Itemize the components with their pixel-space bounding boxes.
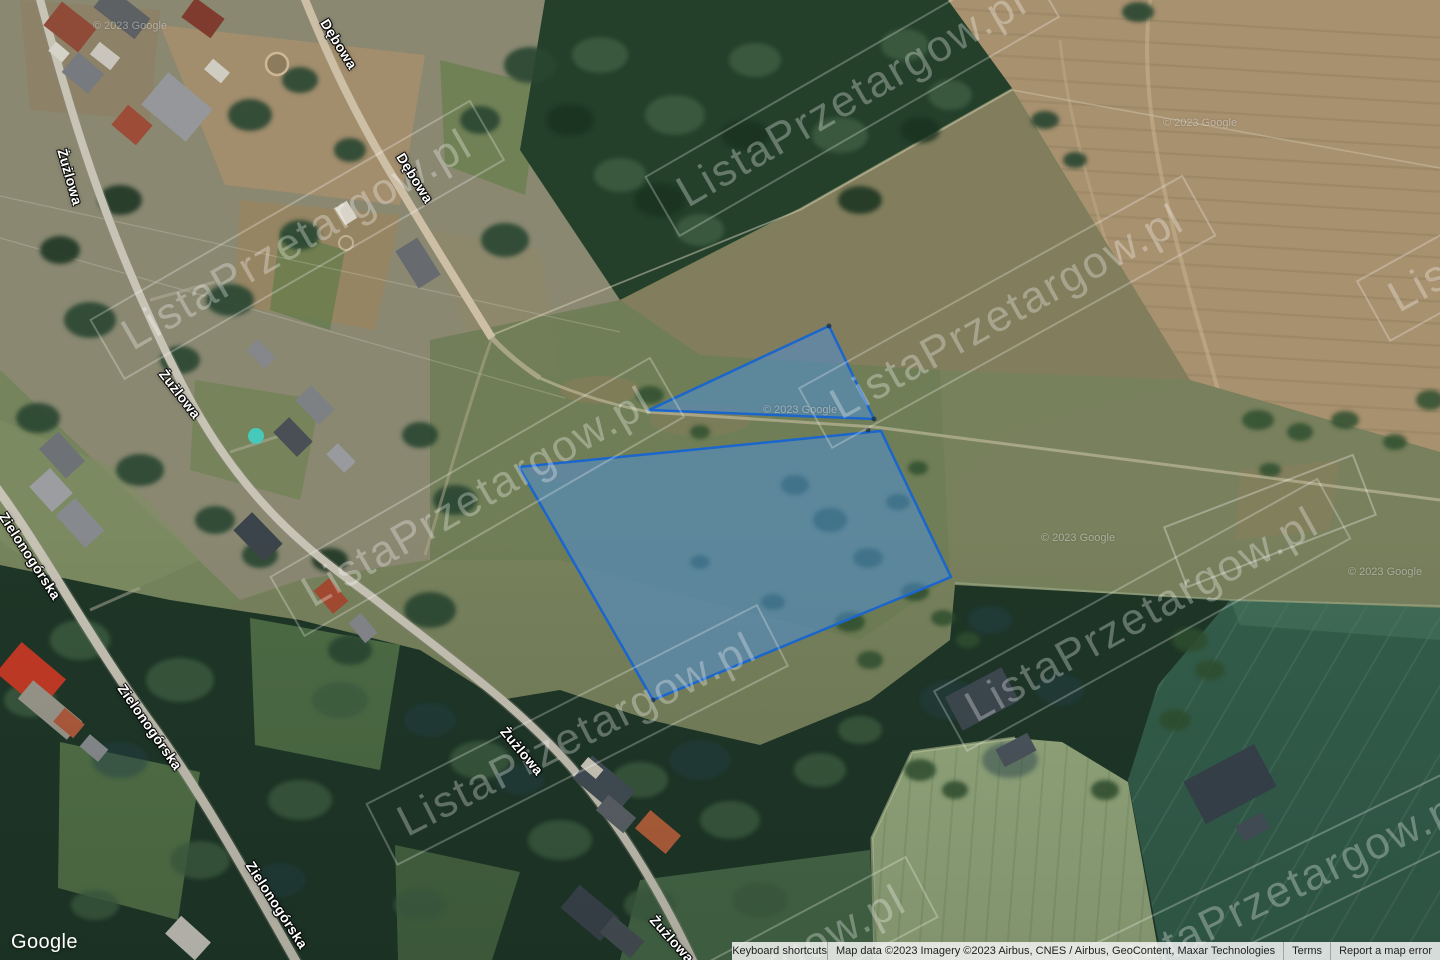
map-canvas[interactable]: ListaPrzetargow.pl ListaPrzetargow.pl Li… [0,0,1440,960]
map-data-attribution: Map data ©2023 Imagery ©2023 Airbus, CNE… [827,942,1283,960]
imagery-credit: © 2023 Google [93,20,167,32]
imagery-credit: © 2023 Google [1348,566,1422,578]
terms-link[interactable]: Terms [1283,942,1330,960]
imagery-credit: © 2023 Google [1041,532,1115,544]
satellite-imagery [0,0,1440,960]
report-map-error-link[interactable]: Report a map error [1330,942,1440,960]
keyboard-shortcuts-button[interactable]: Keyboard shortcuts [732,942,827,960]
google-logo[interactable]: Google [11,931,78,954]
imagery-credit: © 2023 Google [763,404,837,416]
imagery-credit: © 2023 Google [1163,117,1237,129]
attribution-bar: Keyboard shortcuts Map data ©2023 Imager… [732,942,1440,960]
